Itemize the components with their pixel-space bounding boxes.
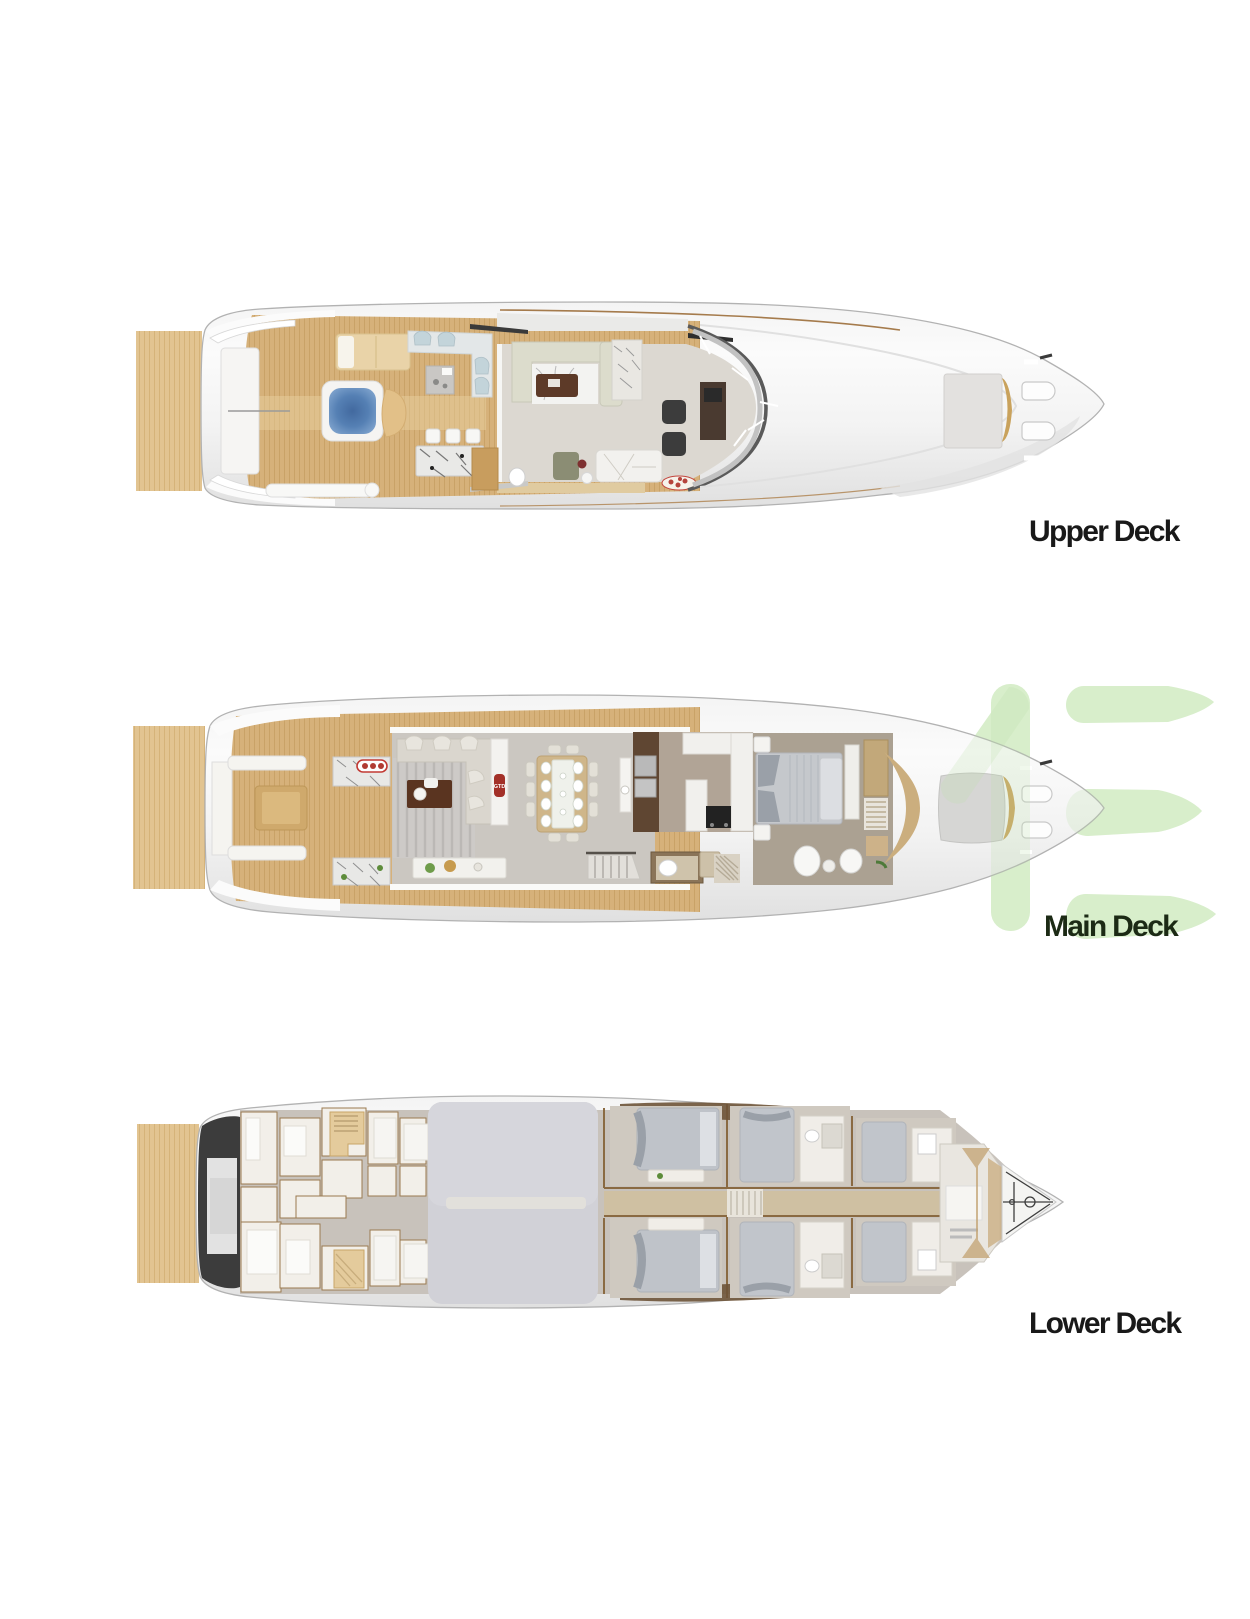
svg-text:GTD: GTD (494, 784, 506, 790)
svg-text:Upper Deck: Upper Deck (1029, 515, 1181, 548)
svg-text:Lower Deck: Lower Deck (1029, 1307, 1182, 1340)
svg-text:Main Deck: Main Deck (1044, 910, 1179, 943)
